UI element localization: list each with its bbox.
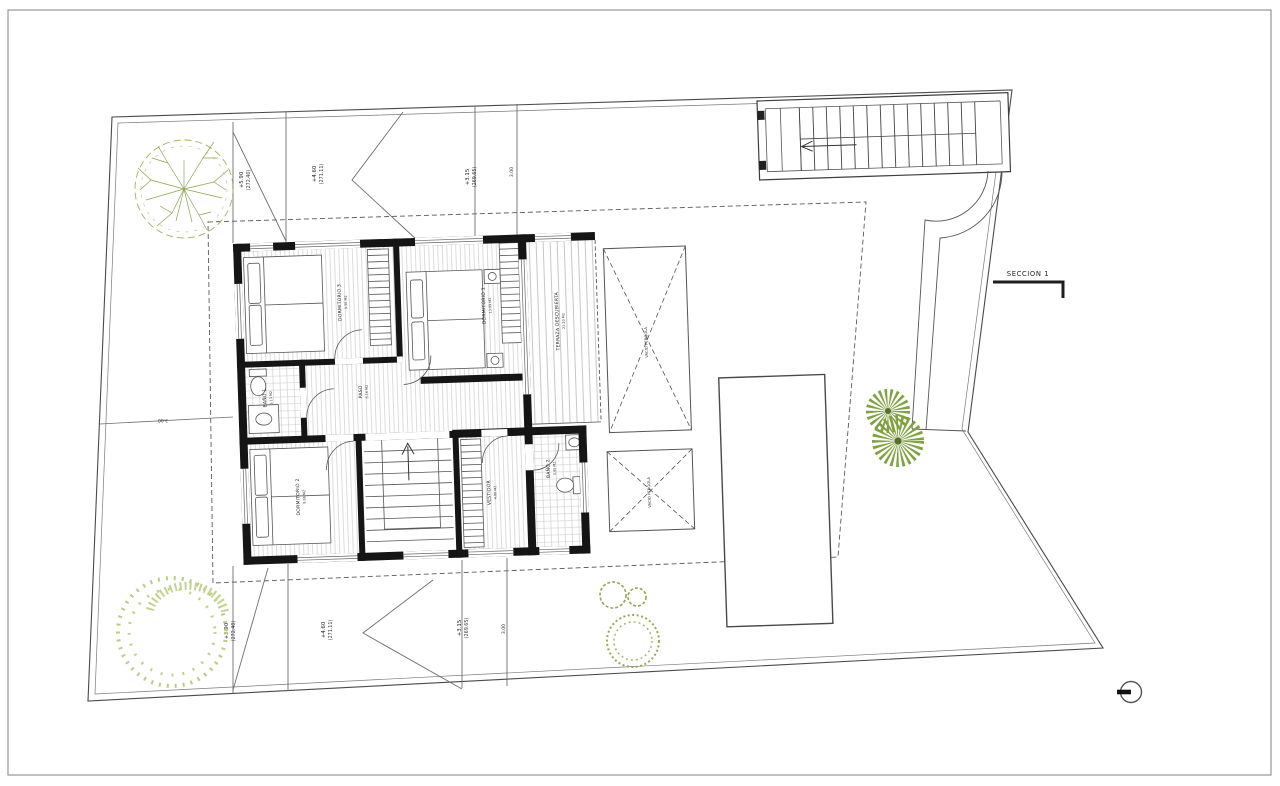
area-bano2: 3.45 M2: [552, 462, 556, 476]
pergola2-label: VACIO PERGOLA: [646, 476, 652, 507]
area-dormitorio3: 9.50 M2: [344, 295, 348, 309]
label-vestidor: VESTIDOR: [486, 479, 493, 505]
pergola1-label: VACIO PERGOLA: [643, 326, 649, 357]
roof-level-bot-2: +4.60: [321, 621, 327, 638]
closet-dormitorio3: [367, 249, 391, 346]
area-dormitorio1: 13.09 M2: [488, 298, 493, 314]
label-dormitorio3: DORMITORIO 3: [336, 284, 343, 321]
area-terraza: 21.20 M2: [561, 313, 566, 329]
area-dormitorio2: 8.66 M2: [302, 490, 306, 504]
bed-dormitorio3: [243, 255, 324, 354]
roof-elev-bot-3: (269.65): [464, 618, 470, 639]
closet-vestidor: [461, 439, 485, 548]
area-bano1: 3.13 M2: [269, 391, 273, 405]
wardrobe-dormitorio1: [499, 243, 521, 344]
roof-level-bot-3: +3.15: [457, 620, 463, 637]
label-dormitorio1: DORMITORIO 1: [481, 287, 488, 324]
vanity-bano1: [248, 405, 279, 434]
roof-elev-top-3: (269.65): [472, 167, 478, 188]
roof-level-top-3: +3.15: [465, 169, 471, 186]
roof-level-top-1: +5.90: [239, 171, 245, 188]
sheet-frame: [8, 10, 1271, 775]
floor-paso-b: [421, 380, 525, 431]
area-vestidor: 4.00 M2: [493, 486, 497, 500]
roof-elev-bot-1: (272.40): [231, 621, 237, 642]
pool: [719, 374, 833, 626]
roof-level-top-4: 3.00: [509, 167, 515, 177]
area-paso: 8.16 M2: [365, 385, 369, 399]
external-staircase: [757, 93, 1010, 180]
roof-level-bot-4: 3.00: [501, 624, 507, 634]
roof-elev-bot-2: (271.11): [328, 620, 334, 641]
section-label: SECCION 1: [1007, 270, 1049, 278]
floor-terraza: [526, 240, 601, 424]
left-offset-label: 3.00: [158, 417, 168, 423]
roof-level-top-2: +4.60: [312, 165, 318, 182]
label-dormitorio2: DORMITORIO 2: [295, 478, 302, 515]
bed-dormitorio2: [250, 447, 331, 546]
label-paso: PASO: [358, 385, 364, 398]
floor-plan-canvas: +5.90 (272.40) +4.60 (271.11) +3.15 (269…: [0, 0, 1280, 786]
roof-elev-top-1: (272.40): [246, 170, 252, 191]
roof-elev-top-2: (271.11): [319, 164, 325, 185]
